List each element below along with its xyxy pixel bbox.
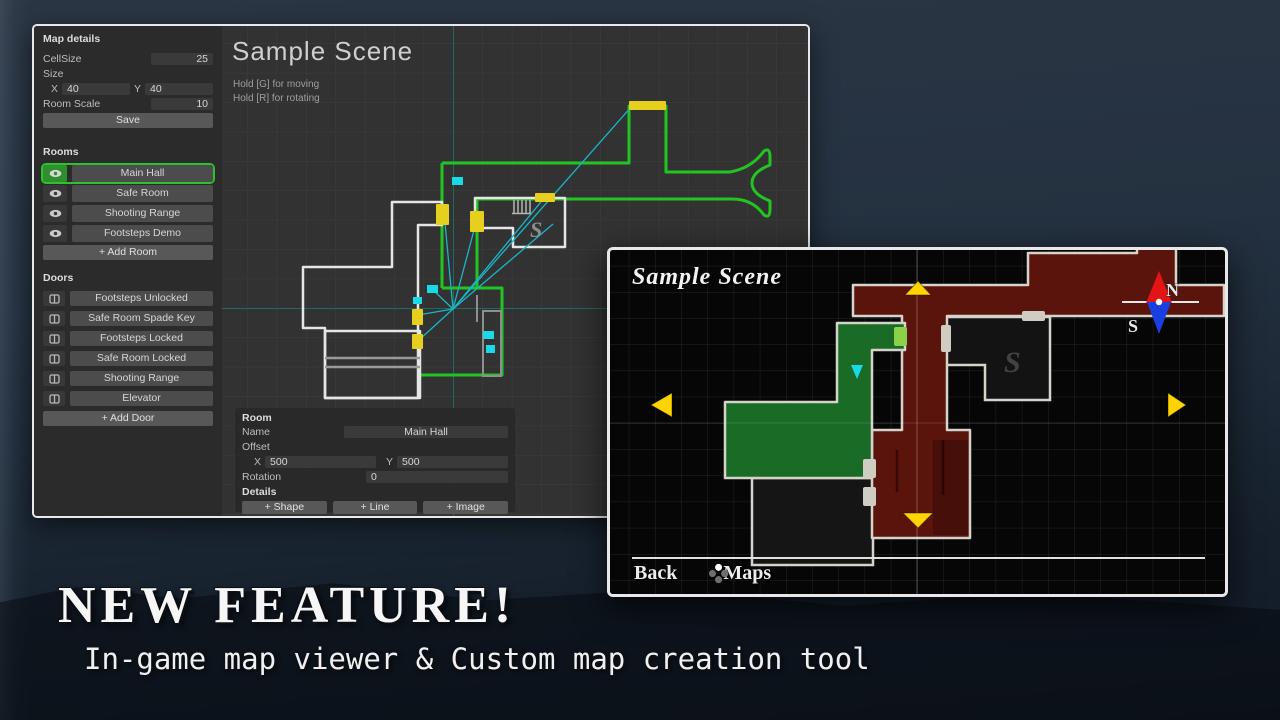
door-item-label[interactable]: Footsteps Unlocked (70, 291, 213, 306)
room-scale-label: Room Scale (43, 98, 151, 110)
door-item-label[interactable]: Safe Room Spade Key (70, 311, 213, 326)
viewer-room-dark-lower (752, 478, 873, 565)
room-scale-field[interactable]: 10 (151, 98, 213, 110)
door-item-safe-room-locked[interactable]: Safe Room Locked (43, 351, 213, 366)
door-item-label[interactable]: Elevator (70, 391, 213, 406)
banner-subtitle: In-game map viewer & Custom map creation… (84, 642, 870, 676)
add-room-button[interactable]: + Add Room (43, 245, 213, 260)
viewer-door-green (894, 327, 907, 346)
room-properties-panel: Room Name Main Hall Offset X 500 Y 500 R… (235, 408, 515, 512)
red-room-shading (933, 440, 968, 535)
hint-rotate: Hold [R] for rotating (233, 93, 320, 104)
scene-title: Sample Scene (232, 36, 413, 67)
door-item-label[interactable]: Footsteps Locked (70, 331, 213, 346)
door-item-label[interactable]: Shooting Range (70, 371, 213, 386)
cellsize-label: CellSize (43, 53, 151, 65)
door-item-footsteps-locked[interactable]: Footsteps Locked (43, 331, 213, 346)
door-icon (43, 311, 65, 326)
rooms-header: Rooms (43, 146, 213, 158)
size-label: Size (43, 68, 213, 80)
doors-header: Doors (43, 272, 213, 284)
viewer-title: Sample Scene (632, 264, 782, 291)
offset-y-label: Y (386, 456, 393, 468)
eye-icon[interactable] (43, 225, 67, 242)
door-item-safe-room-spade-key[interactable]: Safe Room Spade Key (43, 311, 213, 326)
room-item-label[interactable]: Footsteps Demo (72, 225, 213, 242)
eye-icon[interactable] (43, 165, 67, 182)
cellsize-field[interactable]: 25 (151, 53, 213, 65)
offset-x-label: X (254, 456, 261, 468)
viewer-map-svg: S (610, 250, 1225, 594)
gamepad-buttons-icon (634, 562, 803, 585)
ingame-map-viewer-window: S (607, 247, 1228, 597)
maps-button[interactable]: Maps (723, 562, 771, 585)
add-line-button[interactable]: + Line (333, 501, 418, 514)
door-item-footsteps-unlocked[interactable]: Footsteps Unlocked (43, 291, 213, 306)
rotation-field[interactable]: 0 (366, 471, 508, 483)
size-y-field[interactable]: 40 (145, 83, 213, 95)
eye-icon[interactable] (43, 205, 67, 222)
room-item-footsteps-demo[interactable]: Footsteps Demo (43, 225, 213, 242)
rotation-label: Rotation (242, 471, 362, 483)
offset-label: Offset (242, 441, 270, 453)
door-item-elevator[interactable]: Elevator (43, 391, 213, 406)
save-button[interactable]: Save (43, 113, 213, 128)
door-icon (43, 371, 65, 386)
compass-north-label: N (1166, 280, 1179, 300)
door-icon (43, 331, 65, 346)
add-door-button[interactable]: + Add Door (43, 411, 213, 426)
viewer-stairs-label: S (1004, 346, 1021, 379)
room-name-field[interactable]: Main Hall (344, 426, 508, 438)
name-label: Name (242, 426, 340, 438)
offset-x-field[interactable]: 500 (265, 456, 376, 468)
door-item-label[interactable]: Safe Room Locked (70, 351, 213, 366)
details-label: Details (242, 486, 276, 498)
room-panel-title: Room (242, 412, 508, 425)
viewer-bottom-bar: Back Maps (634, 562, 803, 585)
map-details-header: Map details (43, 33, 213, 45)
door-icon (43, 351, 65, 366)
door-icon (43, 391, 65, 406)
size-x-label: X (51, 83, 58, 95)
room-item-safe-room[interactable]: Safe Room (43, 185, 213, 202)
room-item-label[interactable]: Main Hall (72, 165, 213, 182)
add-shape-button[interactable]: + Shape (242, 501, 327, 514)
compass-south-label: S (1128, 316, 1138, 336)
door-icon (43, 291, 65, 306)
add-image-button[interactable]: + Image (423, 501, 508, 514)
offset-y-field[interactable]: 500 (397, 456, 508, 468)
door-item-shooting-range[interactable]: Shooting Range (43, 371, 213, 386)
room-item-label[interactable]: Safe Room (72, 185, 213, 202)
room-item-shooting-range[interactable]: Shooting Range (43, 205, 213, 222)
room-item-label[interactable]: Shooting Range (72, 205, 213, 222)
size-y-label: Y (134, 83, 141, 95)
eye-icon[interactable] (43, 185, 67, 202)
editor-sidebar: Map details CellSize 25 Size X 40 Y 40 R… (34, 26, 222, 516)
hint-move: Hold [G] for moving (233, 79, 319, 90)
size-x-field[interactable]: 40 (62, 83, 130, 95)
room-item-main-hall[interactable]: Main Hall (43, 165, 213, 182)
banner-headline: NEW FEATURE! (58, 576, 516, 635)
